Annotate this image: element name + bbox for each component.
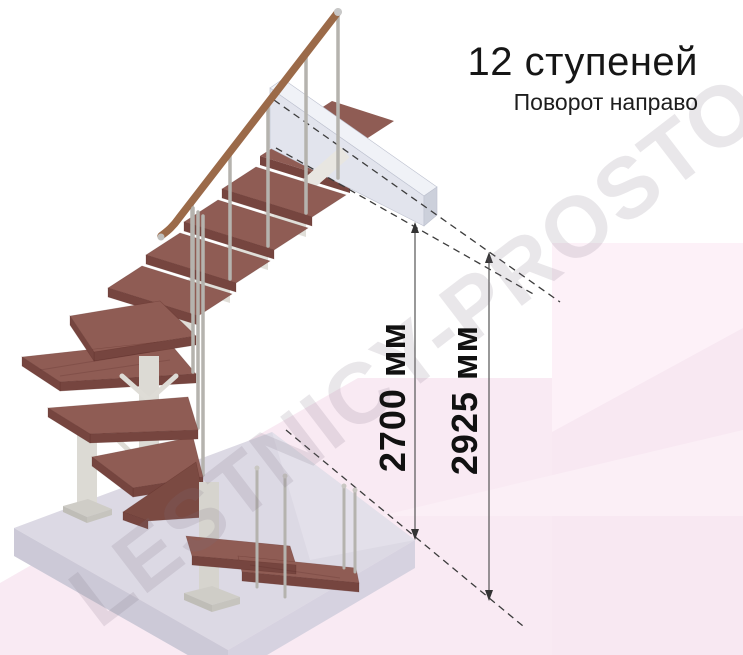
title-block: 12 ступеней Поворот направо bbox=[468, 40, 698, 116]
post-cap bbox=[255, 466, 260, 471]
diagram-page: { "header": { "title": "12 ступеней", "s… bbox=[0, 0, 743, 655]
handrail-end-cap bbox=[158, 234, 165, 241]
handrail-top-cap bbox=[334, 8, 342, 16]
steps-count-title: 12 ступеней bbox=[468, 40, 698, 85]
post-cap bbox=[342, 484, 347, 489]
dimension-label-2925: 2925 мм bbox=[444, 325, 486, 475]
turn-direction-subtitle: Поворот направо bbox=[468, 89, 698, 116]
post-cap bbox=[283, 474, 288, 479]
dimension-label-2700: 2700 мм bbox=[372, 322, 414, 472]
upper-winder-treads bbox=[22, 301, 196, 391]
post-cap bbox=[353, 488, 358, 493]
arrowhead-up bbox=[411, 222, 419, 233]
